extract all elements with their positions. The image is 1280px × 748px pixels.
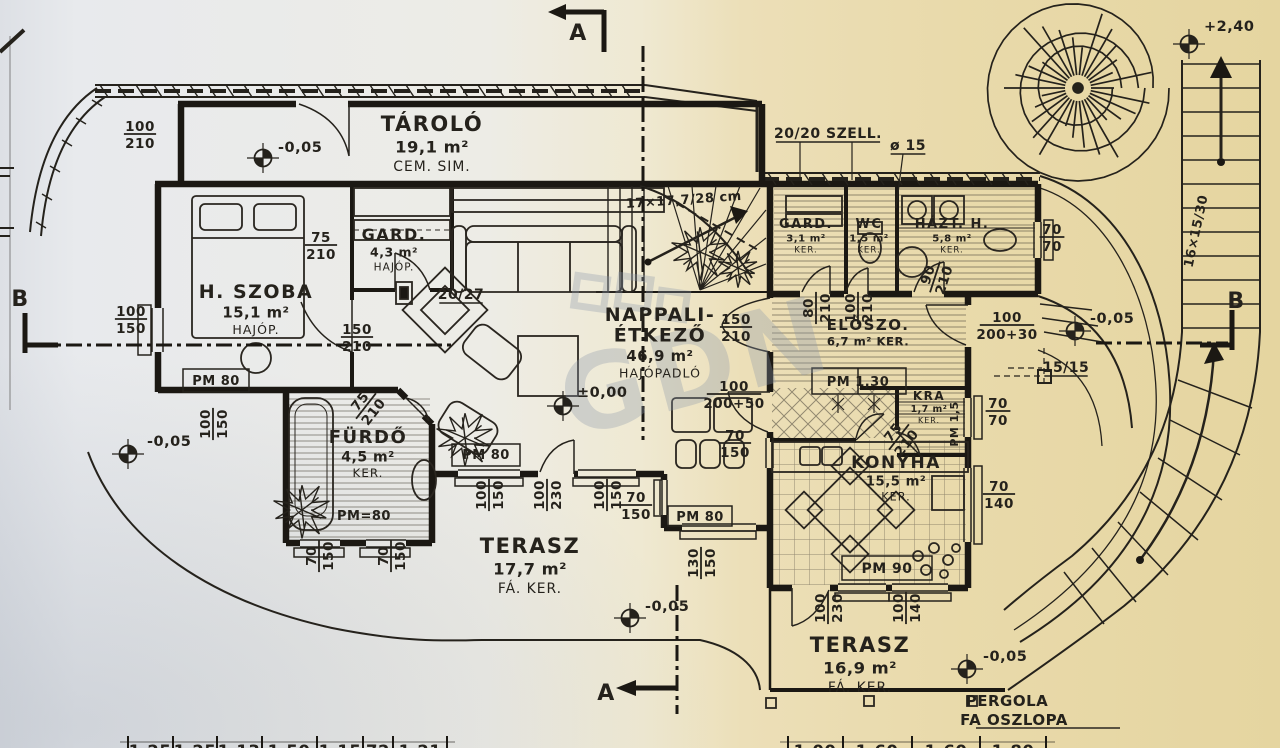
note-label: PM 80 [676,510,724,525]
note-text: PM 1,30 [827,375,890,390]
note-label: ø 15 [890,138,926,154]
room-area: 4,3 m² [370,244,418,259]
dimension-label: 100150 [198,408,231,440]
room-name: TERASZ [480,534,580,558]
bottom-dimension: 1,25 [129,742,172,748]
room-area: 19,1 m² [395,137,469,156]
room-name: WC [856,217,883,232]
bottom-dimension: 1,60 [856,742,899,748]
dimension-width: 100 [843,293,859,323]
room-floor: FÁ. KER. [498,580,562,597]
bottom-dimension: 1,13 [218,742,261,748]
note-text: 20/27 [438,287,485,303]
level-value: -0,05 [1090,311,1134,327]
section-letter: B [11,287,28,312]
room-area: 6,7 m² KER. [827,334,909,348]
bottom-dimension: 1,21 [399,742,442,748]
note-label: PM 90 [861,561,912,577]
dimension-width: 70 [304,546,320,566]
room-name: ÉTKEZŐ [614,323,707,347]
room-floor: HAJÓPADLÓ [619,366,701,381]
note-text: 20/20 SZELL. [774,126,882,142]
dimension-height: 210 [125,136,155,152]
section-letter: A [569,21,587,46]
dimension-label: 150210 [720,312,752,345]
dimension-width: 100 [592,480,608,510]
level-value: -0,05 [645,599,689,615]
note-text: PM 90 [861,561,912,577]
dimension-height: 150 [720,445,750,461]
dimension-height: 70 [988,413,1008,429]
room-name: NAPPALI- [605,304,715,326]
dimension-height: 210 [860,293,876,323]
dimension-label: 130150 [686,547,719,579]
note-label: 20/20 SZELL. [774,126,882,142]
level-value: +2,40 [1204,19,1254,35]
room-label: NAPPALI-ÉTKEZŐ46,9 m²HAJÓPADLÓ [605,304,715,381]
dimension-height: 210 [721,329,751,345]
note-label: PM 80 [462,448,510,463]
dimension-width: 100 [125,119,155,135]
room-area: 1,7 m² [911,404,948,415]
dimension-width: 100 [116,304,146,320]
room-label: TÁROLÓ19,1 m²CEM. SIM. [381,111,483,175]
note-label: PM=80 [337,509,391,524]
note-text: PM 80 [676,510,724,525]
bottom-dimension: 1,80 [992,742,1035,748]
dimension-height: 150 [393,541,409,571]
dimension-width: 100 [992,310,1022,326]
room-area: 1,5 m² [849,233,888,244]
level-value: -0,05 [983,649,1027,665]
room-floor: KER. [857,246,880,256]
dimension-width: 70 [725,428,745,444]
dimension-width: 70 [988,396,1008,412]
dimension-label: 7070 [1040,222,1065,255]
note-text: PM 1,5 [948,401,961,446]
dimension-label: 100150 [474,479,507,511]
dimension-height: 210 [818,293,834,323]
dimension-label: 100150 [115,304,147,337]
dimension-height: 150 [215,409,231,439]
dimension-width: 70 [376,546,392,566]
dimension-width: 100 [198,409,214,439]
dimension-height: 140 [984,496,1014,512]
dimension-width: 150 [721,312,751,328]
room-area: 4,5 m² [341,449,395,465]
dimension-width: 100 [532,480,548,510]
dimension-height: 200+30 [976,327,1037,343]
level-value: -0,05 [147,434,191,450]
dimension-height: 150 [621,507,651,523]
room-area: 46,9 m² [626,348,693,365]
room-floor: KER. [794,246,817,256]
room-area: 16,9 m² [823,658,897,677]
note-text: PM=80 [337,509,391,524]
dimension-label: 100210 [843,292,876,324]
dimension-label: 7070 [986,396,1011,429]
level-value: ±0,00 [577,385,627,401]
bottom-dimension: 1,25 [174,742,217,748]
note-label: PM 1,30 [827,375,890,390]
note-label: FA OSZLOPA [960,711,1068,729]
section-letter: B [1227,289,1244,314]
dimension-label: 100230 [532,479,565,511]
room-area: 17,7 m² [493,559,567,578]
room-floor: HAJÓP. [232,322,279,337]
bottom-dimension: 1,60 [925,742,968,748]
dimension-label: 150210 [341,322,373,355]
section-letter: A [597,681,615,706]
bottom-dimension: 1,50 [268,742,311,748]
room-area: 15,1 m² [222,304,289,321]
room-name: TERASZ [810,633,910,657]
bottom-dimension: 72 [366,742,390,748]
level-value: -0,05 [278,140,322,156]
room-name: KONYHA [851,453,941,473]
dimension-height: 150 [116,321,146,337]
tree-trunk [1073,83,1083,93]
dimension-width: 130 [686,548,702,578]
dimension-label: 100230 [813,592,846,624]
room-area: 5,8 m² [932,233,971,244]
dimension-height: 200+50 [703,396,764,412]
dimension-width: 100 [891,593,907,623]
note-label: PM 1,5 [948,401,961,446]
room-name: GARD. [362,225,427,244]
dimension-height: 70 [1042,239,1062,255]
note-label: 15/15 [1043,360,1090,376]
dimension-label: 100140 [891,592,924,624]
dimension-width: 70 [989,479,1009,495]
room-area: 15,5 m² [866,474,926,489]
scanned-floorplan-page: GDN TÁROLÓ19,1 m²CEM. SIM.GARD.4,3 m²HAJ… [0,0,1280,748]
note-label: 20/27 [438,287,485,303]
room-name: KRA [913,389,945,403]
bottom-dimension: 1,00 [794,742,837,748]
note-text: PM 80 [462,448,510,463]
dimension-height: 210 [306,247,336,263]
dimension-width: 100 [813,593,829,623]
bottom-dimension: 1,15 [319,742,362,748]
dimension-width: 100 [474,480,490,510]
dimension-height: 230 [549,480,565,510]
room-floor: HAJÓP. [374,260,415,273]
note-text: 15/15 [1043,360,1090,376]
room-name: GARD. [779,217,833,232]
dimension-label: 100210 [124,119,156,152]
room-floor: FÁ. KER. [828,679,892,696]
dimension-width: 70 [626,490,646,506]
dimension-width: 70 [1042,222,1062,238]
note-text: PM 80 [192,374,240,389]
room-floor: KER. [353,466,384,480]
room-name: HÁZT. H. [915,216,990,232]
floor-plan-canvas: GDN TÁROLÓ19,1 m²CEM. SIM.GARD.4,3 m²HAJ… [0,0,1280,748]
dimension-width: 150 [342,322,372,338]
dimension-height: 140 [908,593,924,623]
room-floor: KER. [881,490,910,503]
dimension-height: 150 [703,548,719,578]
dimension-width: 80 [801,298,817,318]
note-text: ø 15 [890,138,926,154]
room-name: TÁROLÓ [381,111,483,136]
dimension-height: 230 [830,593,846,623]
room-floor: CEM. SIM. [393,159,470,175]
room-name: FÜRDŐ [329,426,408,448]
room-floor: KER. [940,246,963,256]
dimension-label: 100150 [592,479,625,511]
note-text: FA OSZLOPA [960,711,1068,729]
note-label: PM 80 [192,374,240,389]
note-label: PERGOLA [966,692,1049,710]
room-floor: KER. [918,416,940,425]
dimension-height: 210 [342,339,372,355]
note-text: PERGOLA [966,692,1049,710]
room-name: H. SZOBA [199,281,314,303]
dimension-height: 150 [491,480,507,510]
room-area: 3,1 m² [786,233,825,244]
dimension-height: 150 [321,541,337,571]
dimension-width: 75 [311,230,331,246]
dimension-width: 100 [719,379,749,395]
